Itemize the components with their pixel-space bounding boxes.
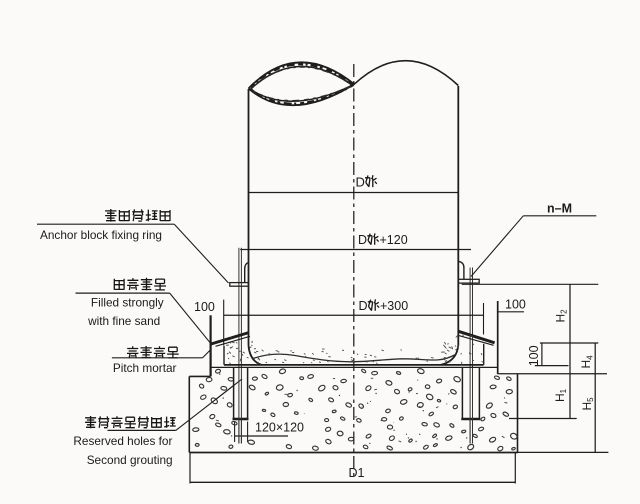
svg-text:120×120: 120×120 xyxy=(255,421,304,435)
svg-text:D: D xyxy=(358,233,367,247)
svg-text:100: 100 xyxy=(505,298,526,312)
svg-text:+120: +120 xyxy=(380,233,408,247)
svg-text:100: 100 xyxy=(194,300,215,314)
svg-text:Reserved holes for: Reserved holes for xyxy=(73,434,172,448)
svg-text:D: D xyxy=(359,299,368,313)
svg-text:Pitch mortar: Pitch mortar xyxy=(113,361,177,375)
svg-text:100: 100 xyxy=(527,345,541,366)
svg-text:Second grouting: Second grouting xyxy=(87,453,173,467)
svg-text:D1: D1 xyxy=(349,466,365,480)
svg-text:n–M: n–M xyxy=(547,202,572,216)
svg-text:+300: +300 xyxy=(380,299,408,313)
svg-text:Anchor block fixing ring: Anchor block fixing ring xyxy=(40,228,162,242)
svg-text:with fine sand: with fine sand xyxy=(87,314,160,328)
svg-text:Filled strongly: Filled strongly xyxy=(91,296,164,310)
svg-text:D: D xyxy=(356,175,365,190)
